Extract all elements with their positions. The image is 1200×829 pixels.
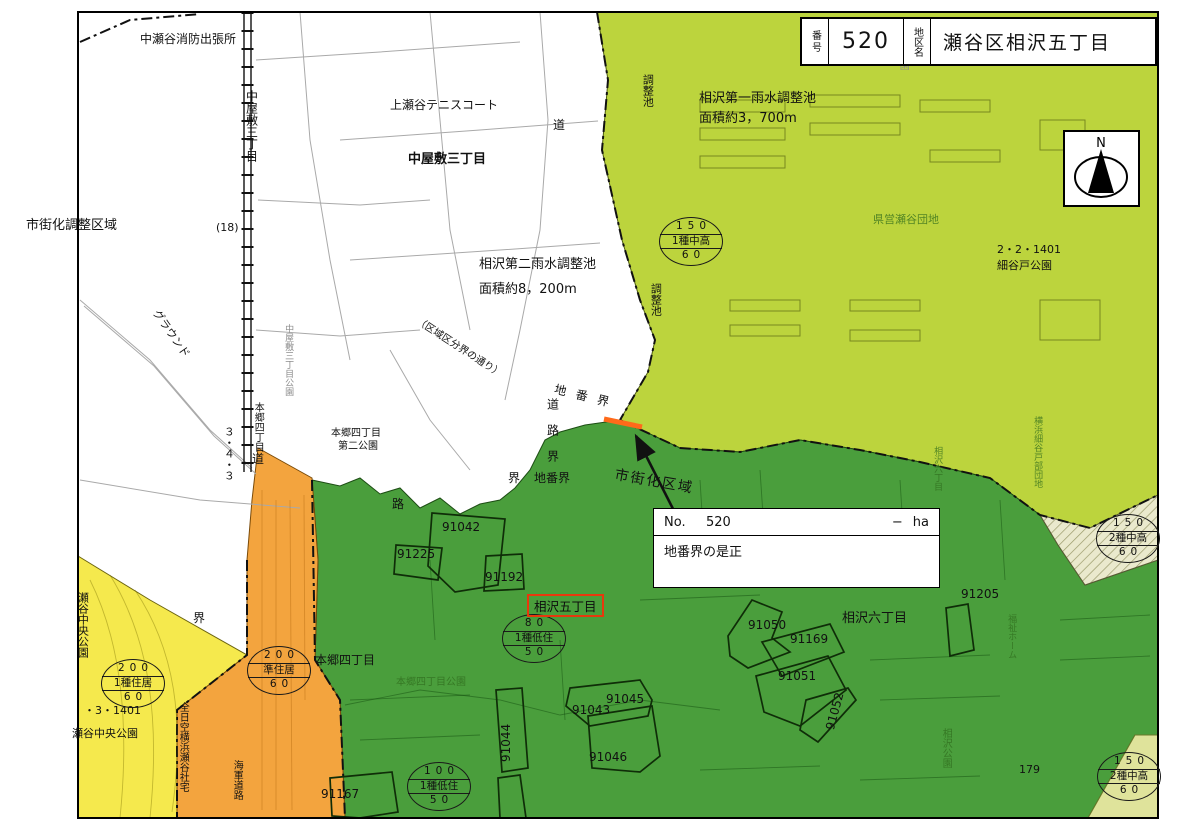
parcel-91051-label: 91051 — [778, 670, 816, 683]
info-note: 地番界の是正 — [654, 536, 939, 565]
north-letter: N — [1096, 136, 1106, 151]
zone-badge-100-1teiju: 1001種低住50 — [407, 762, 471, 811]
chosei-ike-north-label: 調整池 — [641, 74, 653, 107]
parcel-91046-label: 91046 — [589, 751, 627, 764]
nakayashiki-3chome-vertical-label: 中屋敷三丁目 — [244, 90, 257, 162]
parcel-91043-label: 91043 — [572, 704, 610, 717]
nakayashiki-park-label: 中屋敷三丁目公園 — [283, 324, 293, 396]
zone-badge-150-2chuko-right-bb: 60 — [1097, 546, 1159, 560]
road-kanji-top: 道 — [553, 119, 565, 132]
reservoir2-name-label: 相沢第二雨水調整池 — [479, 258, 596, 273]
info-area-dash: − — [892, 515, 903, 530]
zone-badge-200-junjukyo-bm: 準住居 — [248, 663, 310, 679]
title-district-value: 瀬谷区相沢五丁目 — [931, 19, 1155, 64]
parcel-91045-label: 91045 — [606, 693, 644, 706]
zone-badge-200-1jukyo-bt: 200 — [102, 662, 164, 676]
hongo-4chome-vertical-label: 本郷四丁目 — [252, 402, 263, 452]
kai-label-left: 界 — [193, 612, 205, 625]
aizawa-6chome-vertical-label: 相沢六丁目 — [932, 446, 942, 491]
zone-badge-150-2chuko-bottom-bt: 150 — [1098, 755, 1160, 769]
reservoir1-name-label: 相沢第一雨水調整池 — [699, 92, 816, 107]
parcel-91205-label: 91205 — [961, 588, 999, 601]
parcel-91169-label: 91169 — [790, 633, 828, 646]
seya-chuo-park-label: 瀬谷中央公園 — [72, 728, 138, 740]
parcel-91225-label: 91225 — [397, 548, 435, 561]
zone-badge-200-1jukyo: 2001種住居60 — [101, 659, 165, 708]
hosoyado-park-label: 細谷戸公園 — [997, 260, 1052, 272]
seya-chuo-park-vertical-label: 瀬谷中央公園 — [76, 592, 88, 658]
zone-badge-100-1teiju-bb: 50 — [408, 794, 470, 808]
kai-label-west: 界 — [508, 472, 520, 485]
chibankai-label-south: 地番界 — [534, 472, 570, 485]
title-block: 番号 520 地区名 瀬谷区相沢五丁目 — [800, 17, 1157, 66]
north-arrow-box: N — [1063, 130, 1140, 207]
urbanization-control-area-label: 市街化調整区域 — [26, 219, 117, 234]
parcel-91044-label: 91044 — [500, 724, 513, 762]
info-box-row1: No. 520 − ha — [654, 509, 939, 536]
info-no-label: No. — [664, 515, 706, 530]
code-2-2-1401-label: 2・2・1401 — [997, 244, 1061, 256]
parcel-91192-label: 91192 — [485, 571, 523, 584]
chosei-ike-mid-label: 調整池 — [649, 283, 661, 316]
zone-badge-150-1chuko-bt: 150 — [660, 220, 722, 234]
aizawa-6chome-label: 相沢六丁目 — [842, 612, 907, 627]
zoning-map-page: 中瀬谷消防出張所中屋敷三丁目上瀬谷テニスコート中屋敷三丁目市街化調整区域(18)… — [0, 0, 1200, 829]
info-box: No. 520 − ha 地番界の是正 — [653, 508, 940, 588]
zone-badge-150-2chuko-bottom-bm: 2種中高 — [1098, 769, 1160, 785]
highlighted-district-box: 相沢五丁目 — [527, 594, 604, 617]
aizawa-park-label: 相沢公園 — [940, 728, 951, 768]
road-kanji-mid: 道 — [252, 453, 264, 466]
info-no-value: 520 — [706, 515, 892, 530]
zone-badge-80-1teiju: 801種低住50 — [502, 614, 566, 663]
zone-badge-150-1chuko-bm: 1種中高 — [660, 234, 722, 250]
zone-badge-150-2chuko-bottom-bb: 60 — [1098, 784, 1160, 798]
road-3-4-3-label: ３・４・３ — [222, 426, 234, 481]
zone-badge-150-2chuko-right-bm: 2種中高 — [1097, 531, 1159, 547]
parcel-91050-label: 91050 — [748, 619, 786, 632]
fire-station-label: 中瀬谷消防出張所 — [140, 33, 236, 46]
title-no-label: 番号 — [802, 19, 829, 64]
zone-badge-150-1chuko-bb: 60 — [660, 249, 722, 263]
fukushi-home-label: 福祉ホーム — [1006, 614, 1016, 659]
route-18-label: (18) — [216, 222, 239, 234]
north-arrow-icon: N — [1065, 132, 1138, 205]
zone-badge-200-junjukyo-bb: 60 — [248, 678, 310, 692]
highlighted-district-label: 相沢五丁目 — [534, 599, 597, 614]
yokohama-hosoyado-danchi-label: 横浜細谷戸部団地 — [1032, 416, 1042, 488]
reservoir2-area-label: 面積約8，200m — [479, 283, 577, 298]
zone-badge-100-1teiju-bt: 100 — [408, 765, 470, 779]
title-district-label: 地区名 — [904, 19, 931, 64]
ana-yokohama-seya-shataku-label: 全日空横浜瀬谷社宅 — [177, 702, 188, 792]
zone-badge-150-2chuko-right: 1502種中高60 — [1096, 514, 1160, 563]
zone-badge-80-1teiju-bt: 80 — [503, 617, 565, 631]
parcel-179-label: 179 — [1019, 764, 1040, 776]
kenei-seya-danchi-label: 県営瀬谷団地 — [873, 214, 939, 226]
zone-badge-150-2chuko-bottom: 1502種中高60 — [1097, 752, 1161, 801]
zone-badge-200-junjukyo: 200準住居60 — [247, 646, 311, 695]
hongo-4chome-label: 本郷四丁目 — [315, 654, 375, 667]
parcel-91167-label: 91167 — [321, 788, 359, 801]
title-no-value: 520 — [829, 19, 904, 64]
kaigun-doro-label: 海軍道路 — [231, 760, 242, 800]
hongo-4chome-park-label: 本郷四丁目公園 — [396, 677, 466, 688]
kamiseya-tennis-court-label: 上瀬谷テニスコート — [390, 99, 498, 112]
zone-badge-150-1chuko: 1501種中高60 — [659, 217, 723, 266]
dourokai-vertical-label: 道路界 — [545, 398, 558, 476]
zone-badge-200-1jukyo-bm: 1種住居 — [102, 676, 164, 692]
parcel-91042-label: 91042 — [442, 521, 480, 534]
hongo-4chome-park2-line2: 第二公園 — [338, 441, 378, 452]
ro-kanji-mid: 路 — [392, 498, 404, 511]
zone-badge-80-1teiju-bb: 50 — [503, 646, 565, 660]
zone-badge-200-junjukyo-bt: 200 — [248, 649, 310, 663]
nakayashiki-3chome-label: 中屋敷三丁目 — [408, 153, 486, 168]
reservoir1-area-label: 面積約3，700m — [699, 112, 797, 127]
zone-badge-100-1teiju-bm: 1種低住 — [408, 779, 470, 795]
zone-badge-150-2chuko-right-bt: 150 — [1097, 517, 1159, 531]
zone-badge-80-1teiju-bm: 1種低住 — [503, 631, 565, 647]
info-area-unit: ha — [913, 515, 929, 530]
zone-badge-200-1jukyo-bb: 60 — [102, 691, 164, 705]
hongo-4chome-park2-line1: 本郷四丁目 — [331, 428, 381, 439]
